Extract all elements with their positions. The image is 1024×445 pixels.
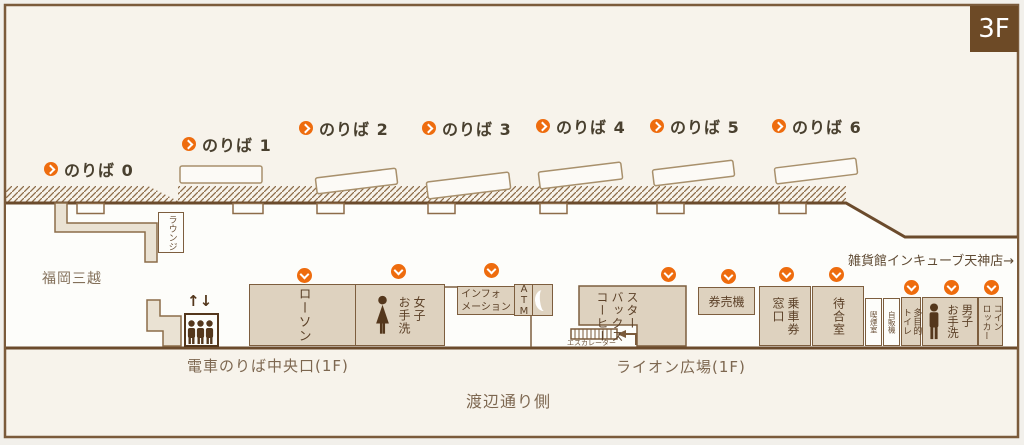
public-phone [532,284,553,316]
lawson-store: ローソン [249,284,356,346]
atm: ATM [514,284,533,316]
platform-label-1: のりば 1 [182,132,272,156]
boarding-marker-icon [182,137,196,151]
waiting-room: 待合室 [812,286,864,346]
platform-label-0: のりば 0 [44,157,134,181]
boarding-marker-icon [536,119,550,133]
boarding-marker-icon [650,119,664,133]
boarding-marker-icon [44,162,58,176]
vending-machine-corner: 自販機 [883,298,900,346]
entrance-door [428,204,455,214]
platform-label-5: のりば 5 [650,114,740,138]
platform-label-2: のりば 2 [299,116,389,140]
boarding-marker-icon [422,121,436,135]
incube-store-note: 雑貨館インキューブ天神店→ [848,250,1014,269]
platform-label-3: のりば 3 [422,116,512,140]
ticket-vending-machines: 券売機 [698,287,755,315]
escalator-label: エスカレーター [567,338,616,348]
coin-locker: コイン ロッカー [978,297,1003,346]
mitsukoshi-label: 福岡三越 [42,268,102,288]
boarding-marker-icon [772,119,786,133]
platform-label-6: のりば 6 [772,114,862,138]
bus-road-hatch [6,186,846,202]
facility-marker-icon [984,280,999,295]
entrance-door [657,204,684,214]
phone-icon [533,289,551,312]
watanabe-street-label: 渡辺通り側 [466,388,551,412]
facility-marker-icon [829,267,844,282]
multipurpose-toilet: 多目的 トイレ [901,297,921,346]
lounge: ラウンジ [158,212,184,253]
facility-marker-icon [904,280,919,295]
womens-restroom: 女子 お手洗 [355,284,445,346]
facility-marker-icon [391,264,406,279]
lion-plaza-label: ライオン広場(1F) [616,356,746,377]
train-central-gate-label: 電車のりば中央口(1F) [187,355,349,376]
elevator-arrows-icon: ↑↓ [187,292,212,310]
entrance-door [540,204,567,214]
starbucks-label: スター バックス コーヒー [594,291,680,343]
entrance-door [233,204,263,214]
mens-restroom: 男子 お手洗 [922,297,978,346]
floor-badge: 3F [970,6,1018,52]
facility-marker-icon [779,267,794,282]
facility-marker-icon [484,263,499,278]
entrance-door [77,204,104,214]
ticket-window: 乗車券 窓口 [759,286,811,346]
entrance-door [779,204,806,214]
floor-plan-drawing [0,0,1024,445]
smoking-room: 喫煙室 [865,298,882,346]
facility-marker-icon [661,267,676,282]
platform-label-4: のりば 4 [536,114,626,138]
boarding-marker-icon [299,121,313,135]
female-icon [374,295,391,335]
facility-marker-icon [297,268,312,283]
facility-marker-icon [721,269,736,284]
terminal-floor-map: 3F のりば 0 のりば 1 のりば 2 のりば 3 のりば 4 のりば 5 の… [0,0,1024,445]
information-counter: インフォ メーション [457,286,515,315]
facility-marker-icon [944,280,959,295]
entrance-door [317,204,344,214]
male-icon [926,303,942,340]
platform-island-1 [180,166,262,183]
